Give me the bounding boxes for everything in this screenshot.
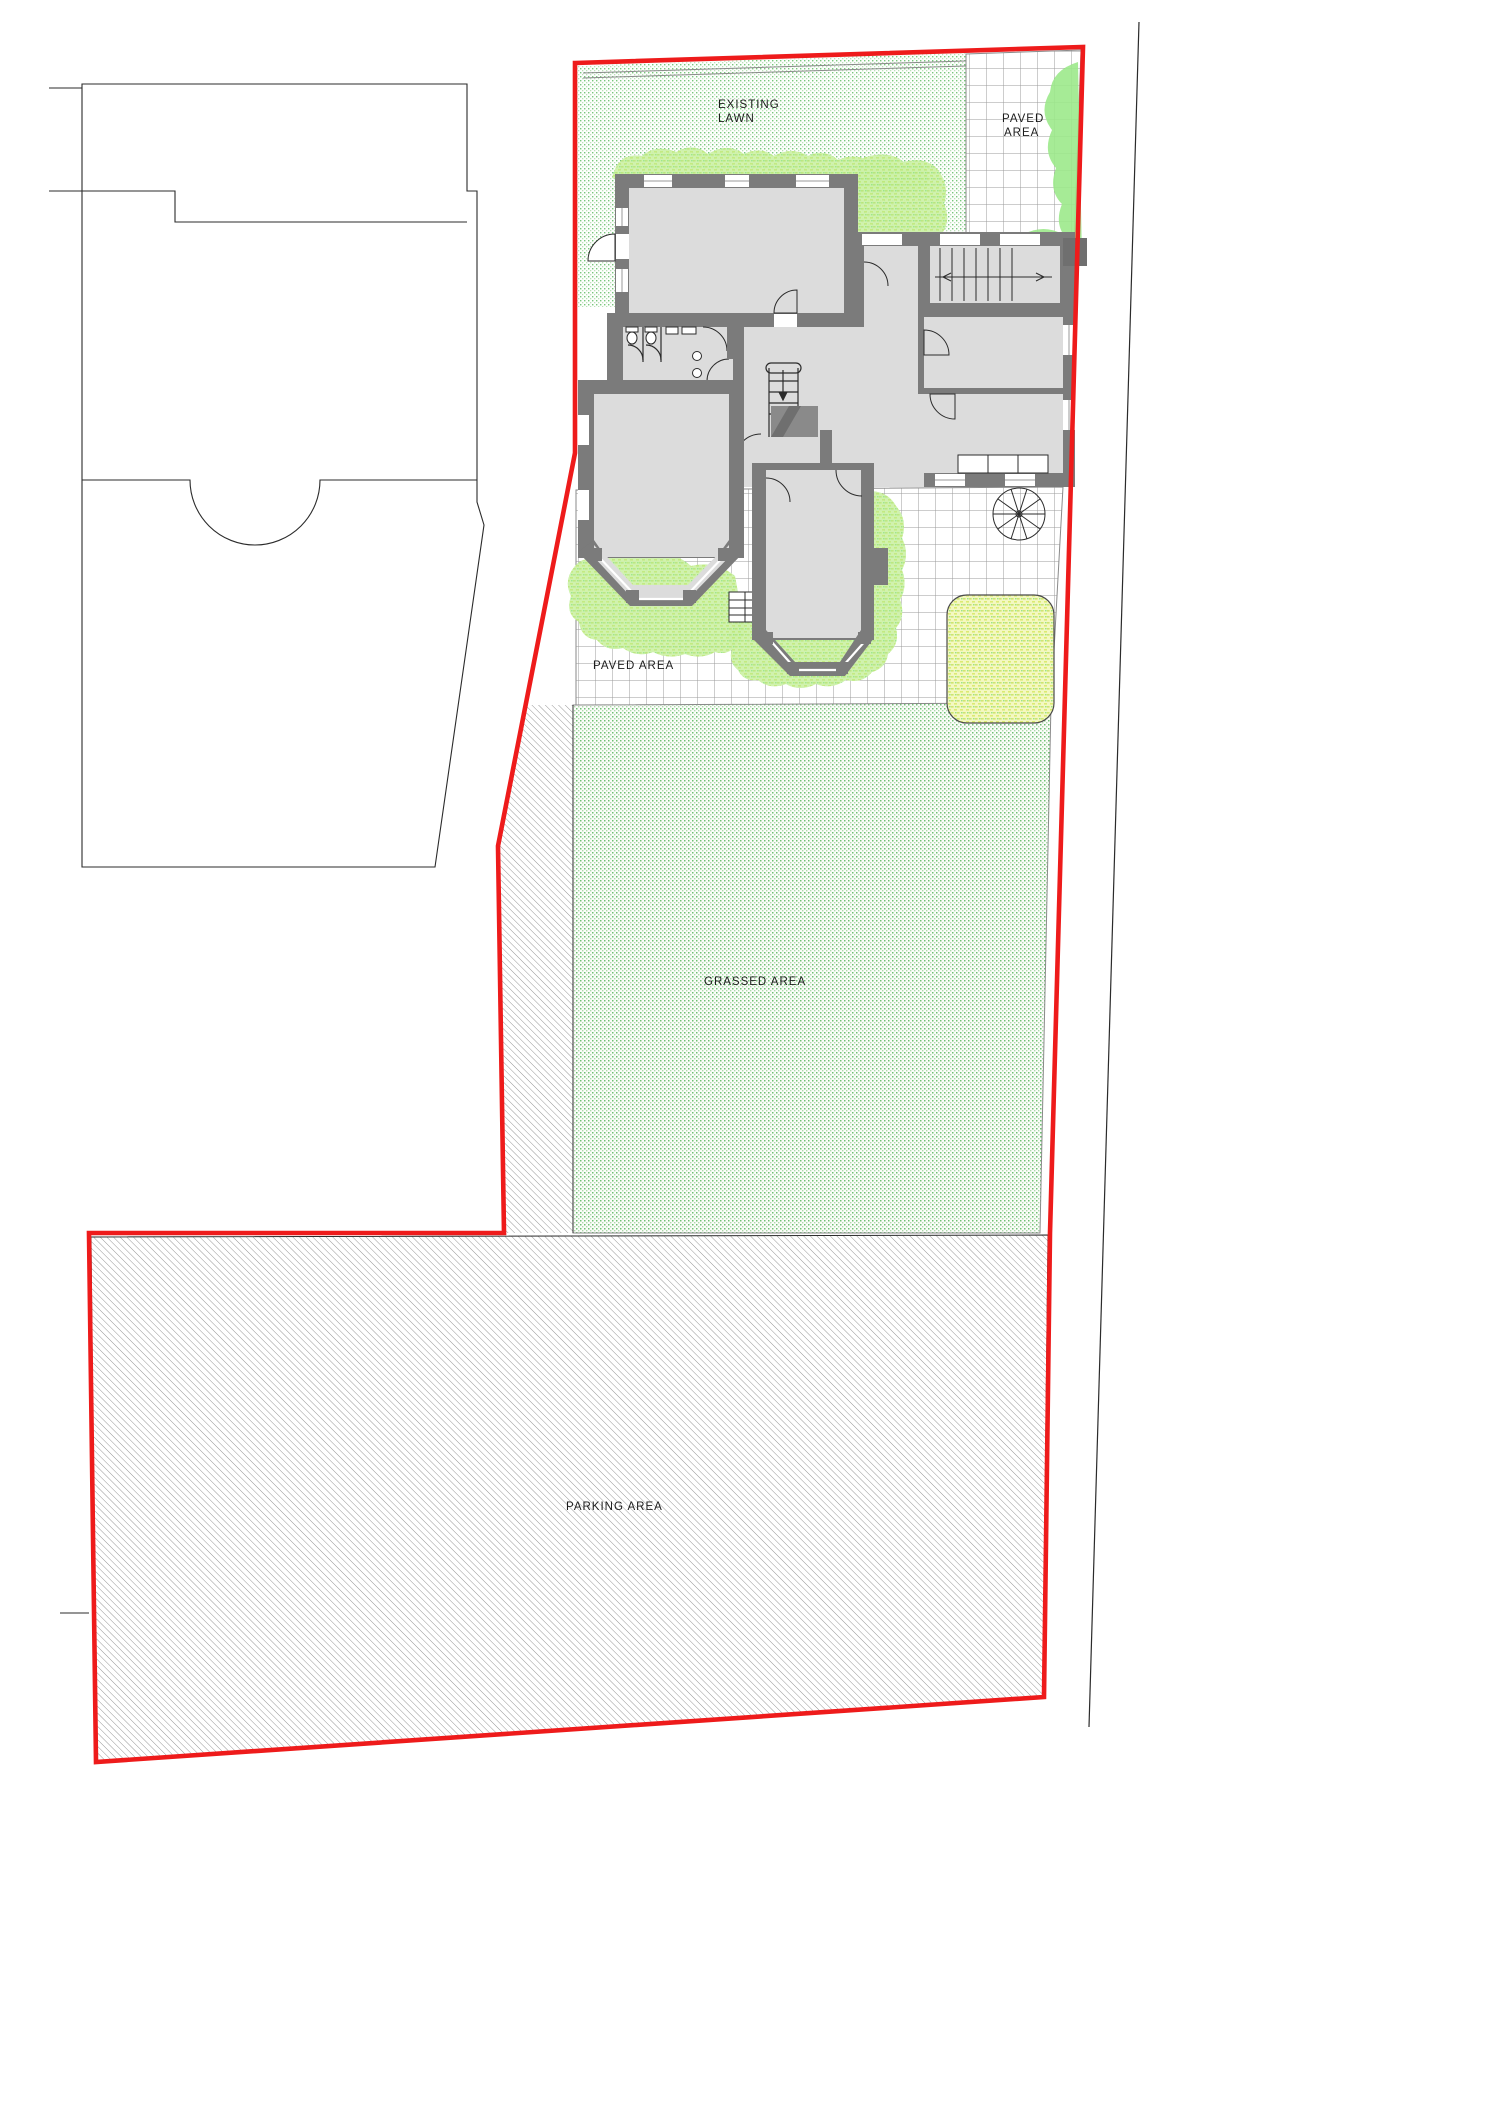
- svg-text:LAWN: LAWN: [718, 113, 755, 125]
- svg-text:GRASSED AREA: GRASSED AREA: [704, 976, 806, 988]
- svg-text:PARKING AREA: PARKING AREA: [566, 1501, 663, 1513]
- svg-text:PAVED AREA: PAVED AREA: [593, 660, 674, 672]
- svg-text:AREA: AREA: [1004, 127, 1039, 139]
- svg-text:PAVED: PAVED: [1002, 113, 1044, 125]
- svg-text:EXISTING: EXISTING: [718, 99, 780, 111]
